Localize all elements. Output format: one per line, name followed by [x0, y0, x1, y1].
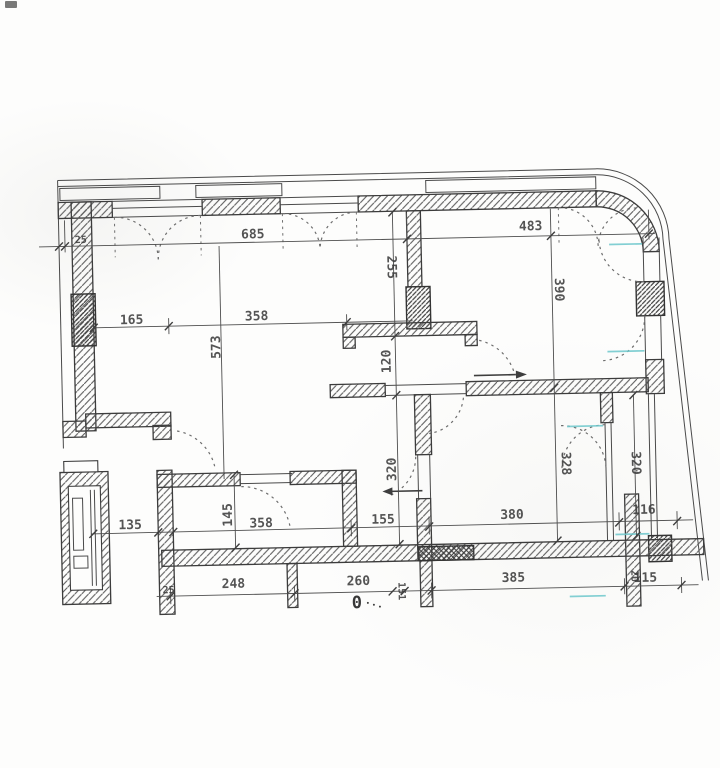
origin-marker: 0 — [352, 593, 363, 613]
dimension-label: 483 — [519, 219, 543, 235]
origin-dots — [379, 606, 381, 608]
dimension-label: 358 — [249, 516, 273, 532]
dimension-label: 145 — [221, 503, 237, 527]
dimension-label: 151 — [395, 582, 406, 600]
dimension-label: 155 — [371, 512, 395, 528]
dimension-label: 358 — [245, 309, 269, 325]
scanned-floor-plan-page: 25 685 483 165 358 573 255 390 120 320 3… — [0, 0, 720, 768]
dimension-label: 328 — [558, 452, 574, 476]
dimension-label: 25 — [75, 235, 87, 246]
wall-column — [636, 281, 665, 316]
dimension-label: 320 — [385, 457, 401, 481]
dimension-label: 390 — [551, 278, 567, 302]
origin-dots — [367, 602, 369, 604]
wall-sill-block — [419, 546, 474, 561]
scan-artifact — [5, 1, 17, 8]
wall-column — [71, 294, 96, 347]
dimension-label: 116 — [632, 503, 656, 519]
origin-dots — [373, 604, 375, 606]
dimension-label: 120 — [379, 349, 395, 373]
dimension-label: 685 — [241, 227, 265, 243]
dimension-label: 20 — [628, 570, 639, 582]
floor-plan-svg: 25 685 483 165 358 573 255 390 120 320 3… — [0, 0, 720, 768]
window-casement-arcs — [114, 206, 637, 260]
dimension-label: 25 — [162, 585, 174, 596]
dimension-label: 320 — [628, 451, 644, 475]
dimension-label: 380 — [500, 507, 524, 523]
top-wall — [58, 191, 596, 219]
utility-shaft — [60, 461, 111, 605]
dimension-label: 248 — [222, 577, 246, 593]
door-swing-arc — [601, 316, 646, 361]
dimension-label: 255 — [383, 255, 399, 279]
dimension-label: 165 — [120, 313, 144, 329]
dimension-label: 573 — [209, 335, 225, 359]
dimension-label: 385 — [501, 570, 525, 586]
dimension-label: 260 — [346, 574, 370, 590]
dimension-label: 135 — [118, 518, 142, 534]
